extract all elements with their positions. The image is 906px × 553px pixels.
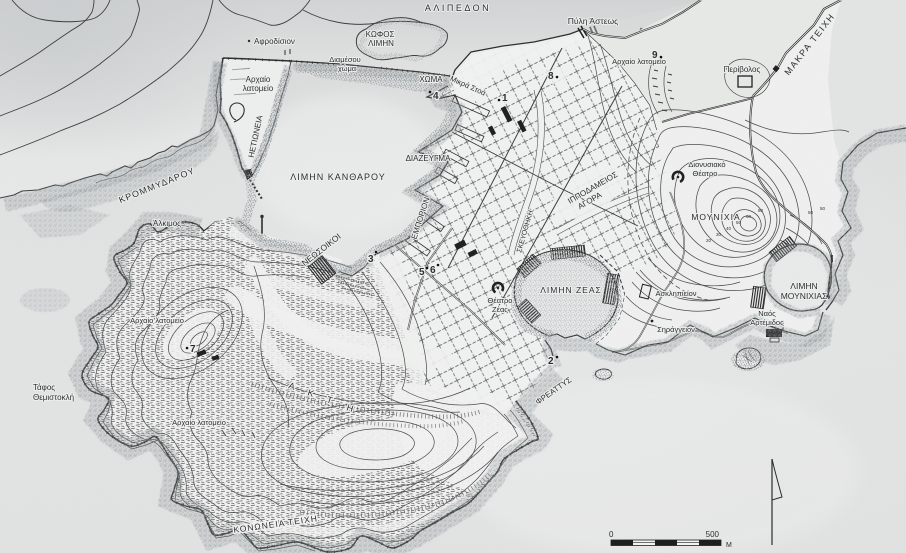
svg-text:5: 5 — [419, 267, 425, 278]
svg-text:ΛΙΜΗΝ: ΛΙΜΗΝ — [368, 39, 394, 48]
svg-text:ΚΩΦΟΣ: ΚΩΦΟΣ — [366, 30, 395, 39]
svg-text:Θέατρο: Θέατρο — [693, 169, 718, 178]
svg-text:Πύλη Άστεως: Πύλη Άστεως — [568, 16, 618, 26]
svg-text:ΛΙΜΗΝ ΚΑΝΘΑΡΟΥ: ΛΙΜΗΝ ΚΑΝΘΑΡΟΥ — [290, 172, 386, 182]
svg-text:ΑΛΙΠΕΔΟΝ: ΑΛΙΠΕΔΟΝ — [425, 3, 491, 13]
svg-text:ΜΟΥΝΙΧΙΑΣ: ΜΟΥΝΙΧΙΑΣ — [781, 291, 828, 301]
svg-text:ΔΙΑΖΕΥΓΜΑ: ΔΙΑΖΕΥΓΜΑ — [406, 154, 452, 163]
svg-text:Μ: Μ — [726, 542, 732, 549]
svg-text:7: 7 — [190, 344, 196, 355]
svg-text:Ναός: Ναός — [758, 309, 776, 318]
svg-text:Αφροδίσιον: Αφροδίσιον — [254, 37, 295, 46]
svg-text:1: 1 — [502, 93, 508, 104]
svg-text:Άλκιμος: Άλκιμος — [153, 219, 181, 228]
svg-text:8: 8 — [548, 71, 554, 82]
svg-text:6: 6 — [430, 265, 436, 276]
svg-text:Θέατρο: Θέατρο — [488, 296, 513, 305]
svg-text:Αρχαίο λατομείο: Αρχαίο λατομείο — [172, 418, 226, 427]
svg-text:Αρτέμιδος: Αρτέμιδος — [750, 318, 784, 327]
svg-text:λατομείο: λατομείο — [243, 84, 274, 93]
svg-text:Θεμιστοκλή: Θεμιστοκλή — [33, 393, 74, 402]
svg-text:Τάφος: Τάφος — [33, 383, 55, 392]
svg-text:2: 2 — [548, 356, 554, 367]
svg-text:500: 500 — [706, 530, 720, 539]
svg-text:ΛΙΜΗΝ ΖΕΑΣ: ΛΙΜΗΝ ΖΕΑΣ — [540, 285, 602, 295]
svg-text:0: 0 — [609, 530, 614, 539]
svg-text:ΛΙΜΗΝ: ΛΙΜΗΝ — [790, 281, 817, 291]
svg-text:Σηράγγειον: Σηράγγειον — [657, 325, 695, 334]
svg-text:χώμα: χώμα — [338, 64, 357, 73]
svg-text:ΜΟΥΝΙΧΙΑ: ΜΟΥΝΙΧΙΑ — [691, 212, 740, 222]
svg-text:ΧΩΜΑ: ΧΩΜΑ — [419, 75, 443, 84]
svg-text:Ζέας: Ζέας — [492, 305, 508, 314]
svg-text:9: 9 — [652, 50, 658, 61]
svg-text:Διαμέσου: Διαμέσου — [329, 55, 361, 64]
svg-text:Αρχαίο λατομείο: Αρχαίο λατομείο — [130, 316, 184, 325]
svg-text:Αρχαίο: Αρχαίο — [246, 75, 271, 84]
svg-text:4: 4 — [433, 91, 439, 102]
svg-text:Αρχαίο λατομείο: Αρχαίο λατομείο — [612, 57, 666, 66]
svg-text:Ασκληπιείον: Ασκληπιείον — [655, 289, 696, 298]
svg-text:3: 3 — [368, 254, 374, 265]
svg-text:Διονυσιακό: Διονυσιακό — [688, 160, 725, 169]
svg-text:Περίβολος: Περίβολος — [724, 65, 761, 74]
